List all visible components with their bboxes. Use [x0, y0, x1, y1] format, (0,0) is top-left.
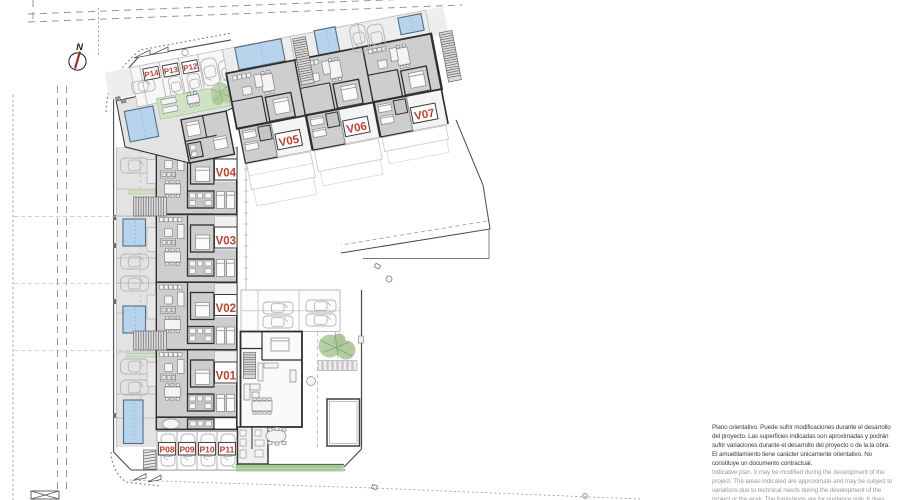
svg-text:V01: V01: [216, 371, 237, 383]
svg-text:P08: P08: [159, 444, 174, 454]
svg-text:V03: V03: [216, 236, 236, 248]
svg-text:V02: V02: [216, 303, 236, 315]
svg-text:V04: V04: [216, 168, 237, 180]
svg-text:P11: P11: [220, 444, 235, 454]
svg-text:P09: P09: [179, 444, 194, 454]
svg-text:N: N: [76, 42, 84, 53]
svg-text:P10: P10: [199, 444, 214, 454]
